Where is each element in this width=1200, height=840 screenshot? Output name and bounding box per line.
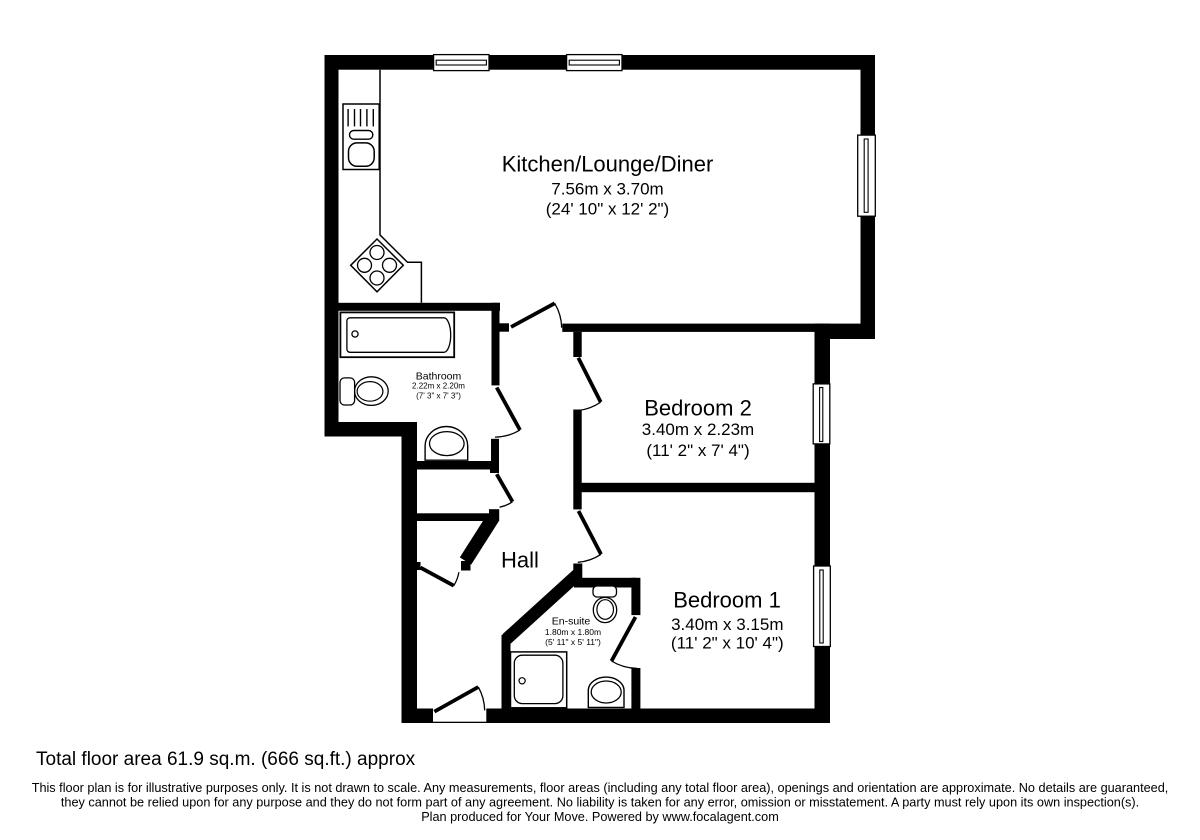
svg-text:7.56m x 3.70m: 7.56m x 3.70m (551, 180, 663, 199)
svg-text:Plan produced for Your Move. P: Plan produced for Your Move. Powered by … (421, 810, 779, 824)
svg-text:1.80m x 1.80m: 1.80m x 1.80m (545, 627, 601, 637)
svg-text:Total floor area 61.9 sq.m. (6: Total floor area 61.9 sq.m. (666 sq.ft.)… (36, 749, 416, 770)
svg-text:Bedroom 1: Bedroom 1 (673, 588, 781, 613)
svg-text:3.40m x 2.23m: 3.40m x 2.23m (642, 420, 754, 439)
svg-text:(7' 3" x 7' 3"): (7' 3" x 7' 3") (416, 391, 461, 400)
svg-text:This floor plan is for illustr: This floor plan is for illustrative purp… (32, 781, 1169, 795)
svg-text:3.40m x 3.15m: 3.40m x 3.15m (671, 615, 783, 634)
svg-text:Kitchen/Lounge/Diner: Kitchen/Lounge/Diner (502, 152, 714, 177)
svg-text:(5' 11" x 5' 11"): (5' 11" x 5' 11") (545, 637, 601, 647)
svg-text:Bedroom 2: Bedroom 2 (644, 396, 752, 421)
svg-text:(11' 2" x 10' 4"): (11' 2" x 10' 4") (671, 634, 784, 653)
svg-text:Hall: Hall (501, 548, 539, 573)
svg-text:2.22m x 2.20m: 2.22m x 2.20m (412, 382, 465, 391)
svg-text:En-suite: En-suite (552, 615, 591, 627)
svg-text:they cannot be relied upon for: they cannot be relied upon for any purpo… (61, 796, 1139, 810)
svg-text:(11' 2" x 7' 4"): (11' 2" x 7' 4") (646, 441, 749, 460)
svg-text:(24' 10" x 12' 2"): (24' 10" x 12' 2") (546, 200, 669, 219)
